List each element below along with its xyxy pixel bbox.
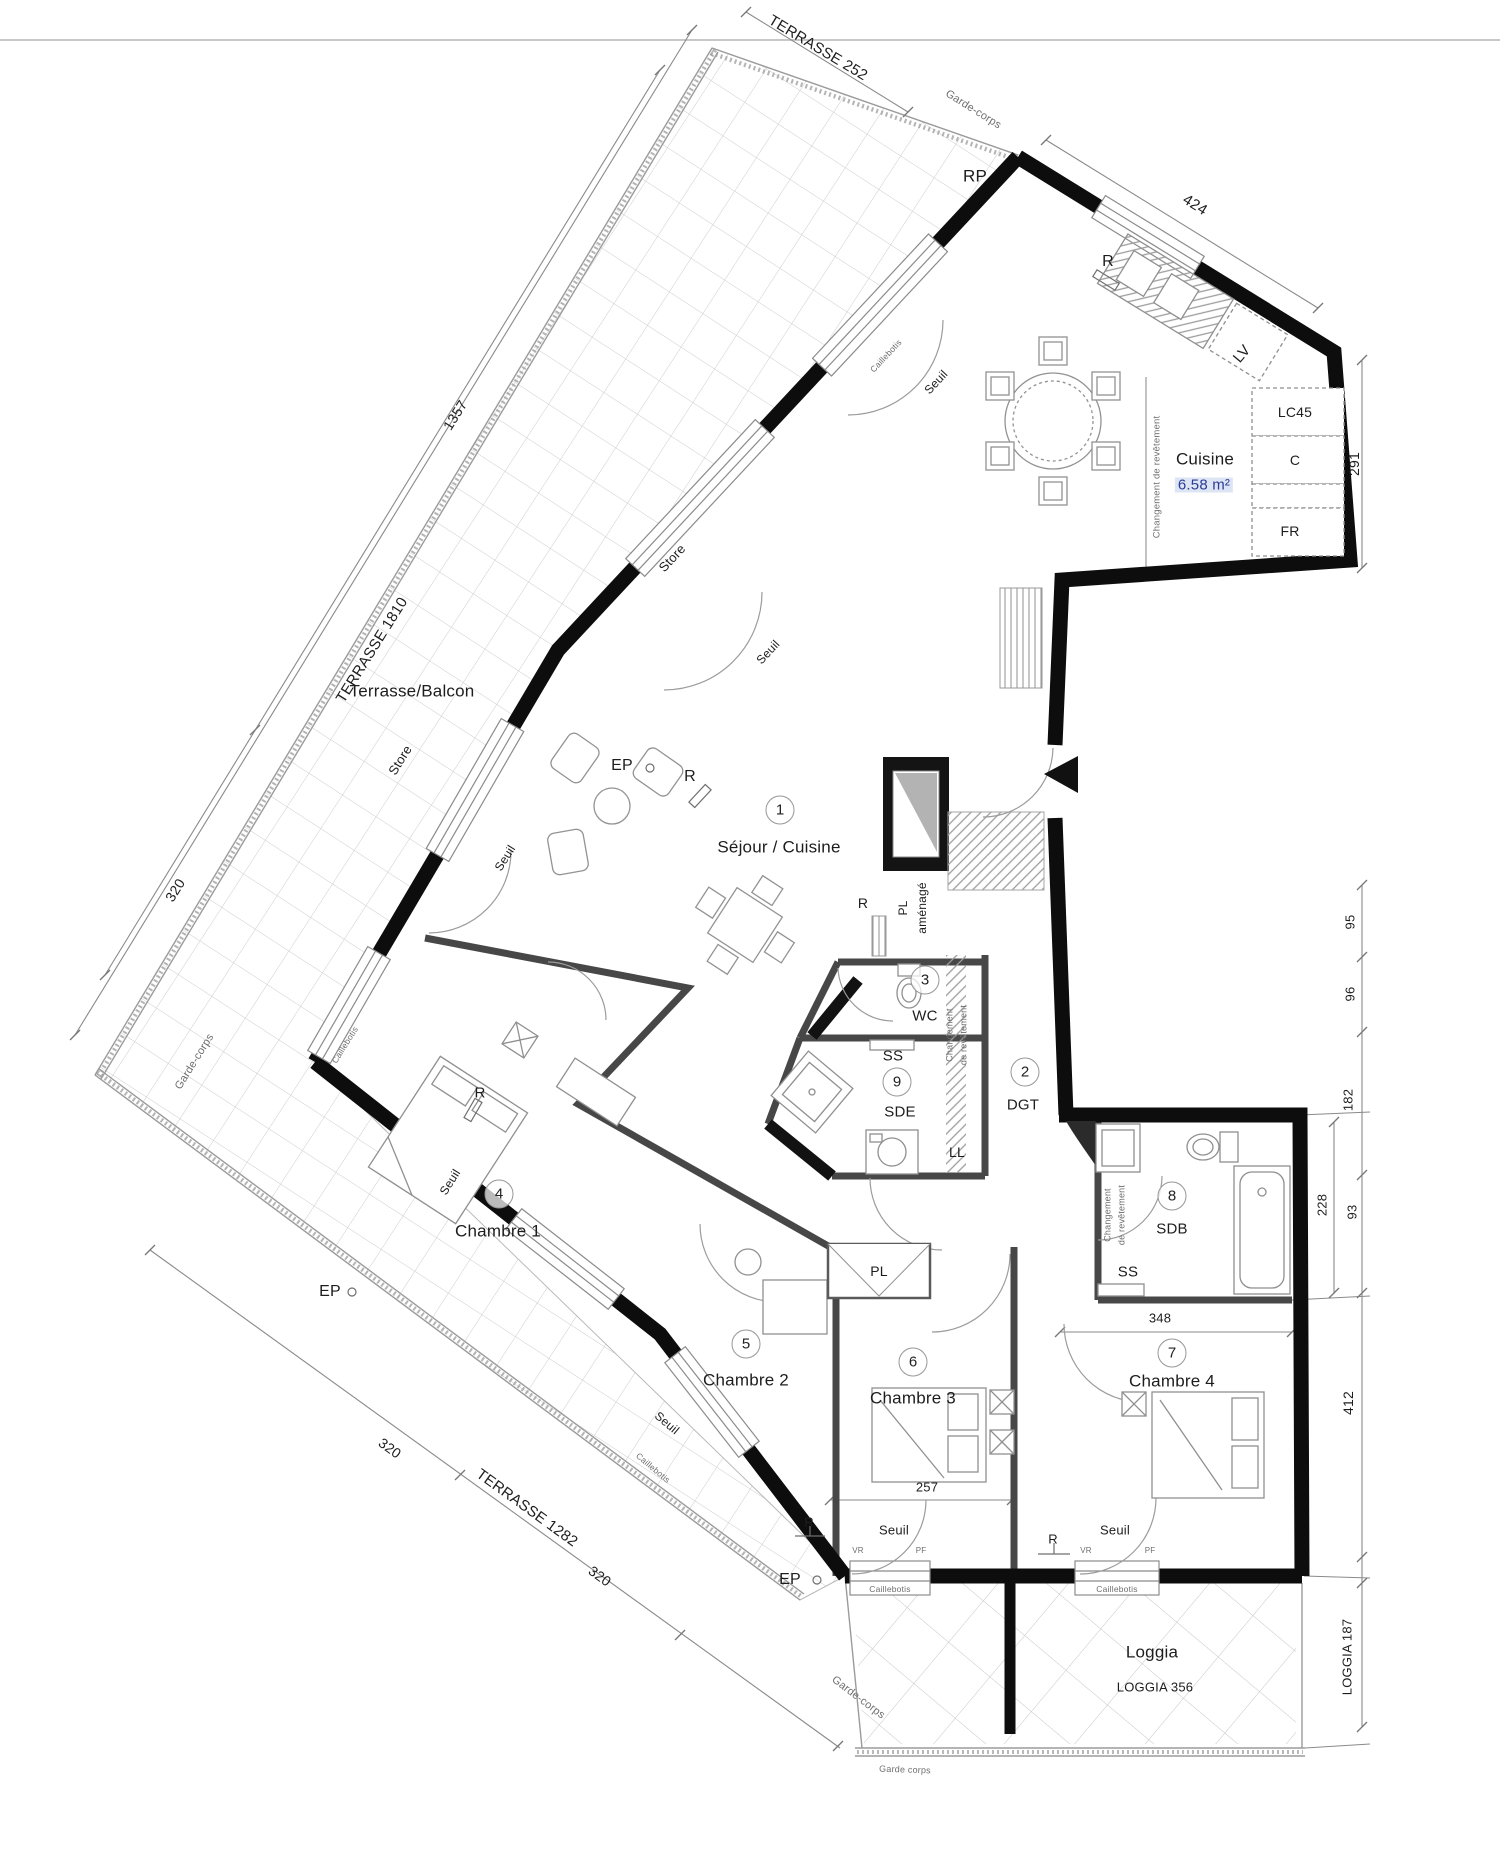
loggia-tiling bbox=[852, 1583, 1296, 1744]
ep-label-2: EP bbox=[319, 1284, 341, 1300]
ll-label: LL bbox=[949, 1145, 965, 1159]
radiator-label-ch2: R bbox=[804, 1516, 814, 1529]
dim-93: 93 bbox=[1346, 1205, 1359, 1220]
pf-label-2: PF bbox=[1145, 1547, 1156, 1555]
dining-table bbox=[986, 337, 1120, 505]
kitchen-area-value: 6.58 m² bbox=[1175, 478, 1233, 493]
bedroom4-furniture bbox=[1122, 1392, 1264, 1498]
terrace-label: Terrasse/Balcon bbox=[350, 683, 475, 700]
room-label-chambre2: Chambre 2 bbox=[703, 1372, 789, 1389]
room-number-3: 3 bbox=[911, 966, 940, 995]
entrance-mat bbox=[948, 812, 1044, 890]
dim-412: 412 bbox=[1341, 1391, 1355, 1415]
dim-228: 228 bbox=[1316, 1194, 1329, 1216]
pl-amenage-line1: PL bbox=[897, 900, 909, 915]
room-number-8: 8 bbox=[1158, 1182, 1187, 1211]
room-number-2: 2 bbox=[1011, 1058, 1040, 1087]
room-label-sdb: SDB bbox=[1156, 1222, 1187, 1237]
fr-label: FR bbox=[1280, 524, 1299, 538]
radiator-label-ch1: R bbox=[474, 1086, 485, 1101]
vr-label-1: VR bbox=[852, 1547, 864, 1555]
ep-label-1: EP bbox=[611, 758, 633, 774]
lc45-label: LC45 bbox=[1278, 405, 1312, 419]
c-label: C bbox=[1290, 453, 1300, 467]
radiator-label-sejour: R bbox=[684, 769, 696, 785]
entrance-arrow-icon bbox=[1044, 756, 1078, 793]
caillebotis-label-loggia2: Caillebotis bbox=[1096, 1585, 1137, 1594]
room-number-4: 4 bbox=[485, 1180, 514, 1209]
floor-plan-drawing bbox=[0, 0, 1500, 1858]
room-number-5: 5 bbox=[732, 1330, 761, 1359]
radiator-label-ch3: R bbox=[1048, 1533, 1058, 1546]
floor-plan-page: TERRASSE 252 Garde-corps RP 424 R LV LC4… bbox=[0, 0, 1500, 1858]
dim-291: 291 bbox=[1347, 452, 1361, 476]
ss-label-sdb: SS bbox=[1118, 1265, 1138, 1280]
room-number-6: 6 bbox=[899, 1348, 928, 1377]
pl-amenage-block bbox=[872, 757, 949, 956]
finish-change-dgt-1: Changement bbox=[946, 1008, 955, 1062]
room-label-chambre3: Chambre 3 bbox=[870, 1390, 956, 1407]
dim-348: 348 bbox=[1149, 1312, 1171, 1325]
room-label-dgt: DGT bbox=[1007, 1098, 1039, 1113]
pf-label-1: PF bbox=[916, 1547, 927, 1555]
kitchen-label: Cuisine bbox=[1176, 451, 1234, 468]
room-label-sde: SDE bbox=[884, 1105, 915, 1120]
dim-loggia-356: LOGGIA 356 bbox=[1117, 1681, 1193, 1694]
seuil-label-loggia1: Seuil bbox=[879, 1524, 909, 1537]
rp-label: RP bbox=[963, 168, 987, 185]
ss-label-sde: SS bbox=[883, 1049, 903, 1064]
dim-257: 257 bbox=[916, 1481, 938, 1494]
dim-95: 95 bbox=[1344, 915, 1357, 930]
living-furniture bbox=[547, 730, 816, 995]
room-number-7: 7 bbox=[1158, 1339, 1187, 1368]
pl-amenage-line2: aménagé bbox=[916, 882, 928, 933]
finish-change-sdb-1: Changement bbox=[1104, 1188, 1113, 1242]
room-label-chambre4: Chambre 4 bbox=[1129, 1373, 1215, 1390]
ep-label-3: EP bbox=[779, 1572, 801, 1588]
radiator-label-core: R bbox=[858, 896, 868, 910]
finish-change-dgt-2: de revêtement bbox=[960, 1005, 969, 1065]
finish-change-sdb-2: de revêtement bbox=[1118, 1185, 1127, 1245]
room-label-chambre1: Chambre 1 bbox=[455, 1223, 541, 1240]
vr-label-2: VR bbox=[1080, 1547, 1092, 1555]
terrace-tiling bbox=[95, 48, 1018, 1600]
garde-corps-label-loggia: Garde corps bbox=[879, 1765, 931, 1776]
seuil-label-loggia2: Seuil bbox=[1100, 1524, 1130, 1537]
room-number-1: 1 bbox=[766, 796, 795, 825]
loggia-label: Loggia bbox=[1126, 1644, 1178, 1661]
dim-96: 96 bbox=[1344, 987, 1357, 1002]
radiator-label-kitchen: R bbox=[1102, 254, 1114, 270]
dim-loggia-187: LOGGIA 187 bbox=[1341, 1619, 1354, 1695]
room-number-9: 9 bbox=[883, 1068, 912, 1097]
pl-label: PL bbox=[870, 1264, 888, 1278]
caillebotis-label-loggia1: Caillebotis bbox=[869, 1585, 910, 1594]
finish-change-kitchen: Changement de revêtement bbox=[1152, 416, 1162, 539]
dim-182: 182 bbox=[1342, 1089, 1355, 1111]
bedroom2-furniture bbox=[735, 1249, 827, 1334]
entry-radiator bbox=[1000, 588, 1042, 688]
room-label-sejour-cuisine: Séjour / Cuisine bbox=[717, 839, 840, 856]
room-label-wc: WC bbox=[912, 1009, 937, 1024]
